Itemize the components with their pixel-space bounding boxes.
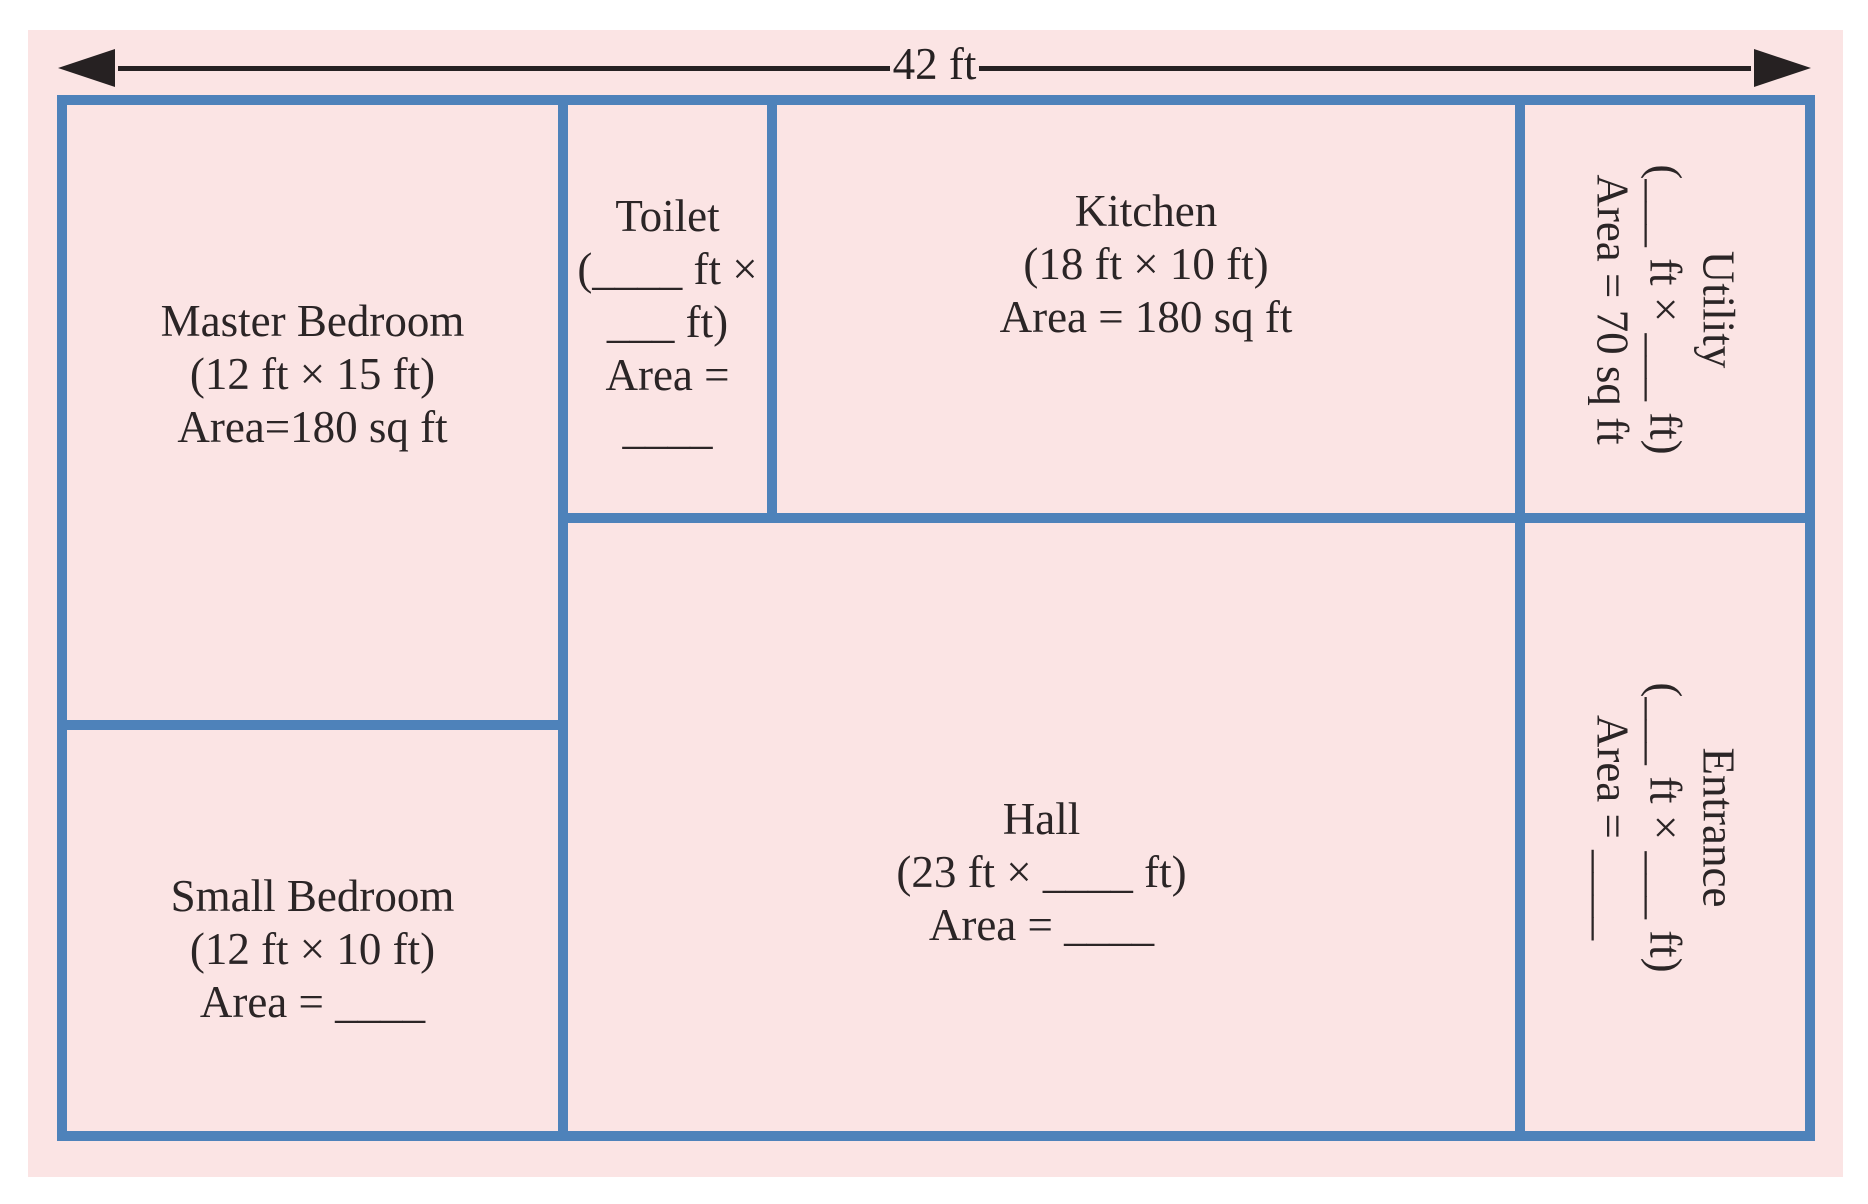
room-kitchen: Kitchen (18 ft × 10 ft) Area = 180 sq ft (777, 105, 1515, 513)
room-utility: Utility (___ ft × ___ ft) Area = 70 sq f… (1525, 105, 1805, 513)
room-dimensions: (___ ft × ___ ft) (1639, 164, 1692, 454)
room-area-blank: ____ (623, 402, 713, 455)
floor-plan-figure: 42 ft Master Bedroom (12 ft × 15 ft) Are… (0, 0, 1868, 1204)
room-name: Hall (1003, 793, 1080, 846)
room-area: Area=180 sq ft (177, 401, 447, 454)
floor-plan: Master Bedroom (12 ft × 15 ft) Area=180 … (57, 95, 1815, 1141)
room-area: Area = ____ (200, 976, 425, 1029)
room-dimensions: ___ ft) (607, 296, 728, 349)
room-name: Small Bedroom (171, 870, 455, 923)
room-dimensions: (___ ft × ___ ft) (1639, 682, 1692, 972)
room-dimensions: (23 ft × ____ ft) (896, 846, 1186, 899)
width-dimension-arrow: 42 ft (58, 46, 1811, 90)
arrow-right-head-icon (1754, 49, 1811, 87)
arrow-line-right (979, 66, 1751, 71)
room-area: Area = (605, 349, 729, 402)
width-dimension-label: 42 ft (893, 42, 977, 95)
room-dimensions: (12 ft × 10 ft) (190, 923, 435, 976)
rotated-label: Entrance (___ ft × ___ ft) Area = ____ (1586, 682, 1745, 972)
room-entrance: Entrance (___ ft × ___ ft) Area = ____ (1525, 523, 1805, 1131)
arrow-line-left (118, 66, 890, 71)
room-hall: Hall (23 ft × ____ ft) Area = ____ (568, 523, 1515, 1131)
room-toilet: Toilet (____ ft × ___ ft) Area = ____ (568, 105, 767, 513)
room-area: Area = ____ (929, 899, 1154, 952)
room-name: Kitchen (1075, 185, 1217, 238)
room-dimensions: (18 ft × 10 ft) (1023, 238, 1268, 291)
room-area: Area = 70 sq ft (1586, 164, 1639, 454)
arrow-left-head-icon (58, 49, 115, 87)
room-area: Area = 180 sq ft (1000, 291, 1293, 344)
room-name: Utility (1692, 164, 1745, 454)
room-name: Entrance (1692, 682, 1745, 972)
room-dimensions: (____ ft × (577, 243, 757, 296)
room-dimensions: (12 ft × 15 ft) (190, 348, 435, 401)
room-name: Master Bedroom (161, 295, 465, 348)
room-area: Area = ____ (1586, 682, 1639, 972)
room-name: Toilet (615, 190, 719, 243)
floor-plan-panel: 42 ft Master Bedroom (12 ft × 15 ft) Are… (28, 30, 1843, 1177)
room-master-bedroom: Master Bedroom (12 ft × 15 ft) Area=180 … (67, 105, 558, 720)
room-small-bedroom: Small Bedroom (12 ft × 10 ft) Area = ___… (67, 730, 558, 1131)
rotated-label: Utility (___ ft × ___ ft) Area = 70 sq f… (1586, 164, 1745, 454)
